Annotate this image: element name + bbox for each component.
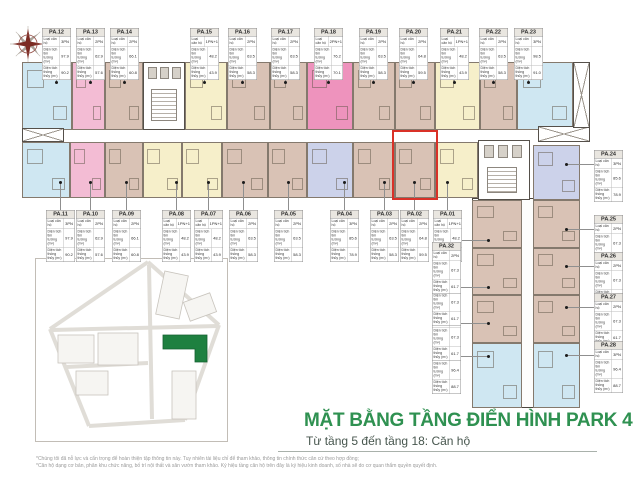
- leader-dot: [383, 181, 386, 184]
- footnotes: *Chúng tôi đã nỗ lực và cẩn trọng để hoà…: [36, 456, 596, 470]
- unit-info-table-PA.32: PA.32Loại căn hộ2PNDiện tích tim tường (…: [432, 242, 461, 294]
- info-row-1: Loại căn hộ2PN: [77, 37, 105, 48]
- info-row-2: Diện tích tim tường (m²)48.2: [195, 229, 223, 248]
- unit-PA.10[interactable]: [70, 142, 105, 198]
- info-row-value: 90.2: [60, 66, 71, 80]
- info-row-label: Diện tích tim tường (m²): [433, 261, 450, 279]
- info-row-value: 63.5: [292, 229, 303, 247]
- leader-dot: [565, 306, 568, 309]
- info-row-label: Diện tích thông thủy (m²): [163, 248, 180, 262]
- info-row-label: Loại căn hộ: [400, 37, 417, 47]
- floor-plan-page: PA.01Loại căn hộ1PN+1Diện tích tim tường…: [0, 0, 640, 500]
- info-row-2: Diện tích tim tường (m²)64.8: [401, 229, 429, 248]
- info-row-value: 66.1: [130, 229, 141, 247]
- info-row-value: 62.9: [94, 229, 105, 247]
- info-row-label: Diện tích thông thủy (m²): [315, 66, 332, 80]
- info-row-3: Diện tích thông thủy (m²)88.7: [433, 380, 461, 394]
- unit-PA.04[interactable]: [307, 142, 353, 198]
- unit-PA.25[interactable]: [533, 200, 580, 248]
- unit-PA.03[interactable]: [353, 142, 395, 198]
- info-row-label: Loại căn hộ: [191, 37, 206, 47]
- unit-info-table-PA.16: PA.16Loại căn hộ2PNDiện tích tim tường (…: [228, 28, 257, 80]
- info-row-value: 67.3: [612, 271, 623, 289]
- info-row-value: 2PN: [292, 219, 303, 229]
- info-row-3: Diện tích thông thủy (m²)58.3: [229, 66, 257, 80]
- unit-id-label: PA.01: [434, 211, 462, 219]
- info-row-value: 3PN: [612, 159, 623, 169]
- info-row-3: Diện tích thông thủy (m²)61.7: [433, 312, 461, 326]
- info-row-label: Diện tích thông thủy (m²): [360, 66, 377, 80]
- info-row-value: 60.8: [128, 66, 139, 80]
- info-row-1: Loại căn hộ3PN: [47, 219, 75, 230]
- unit-id-label: PA.18: [315, 29, 343, 37]
- info-row-label: Diện tích tim tường (m²): [272, 47, 289, 65]
- info-row-value: 43.9: [208, 66, 219, 80]
- info-row-value: 58.3: [388, 248, 399, 262]
- info-row-value: 43.9: [180, 248, 191, 262]
- leader-dot: [487, 355, 490, 358]
- info-row-label: Diện tích tim tường (m²): [191, 47, 208, 65]
- unit-id-label: PA.15: [191, 29, 219, 37]
- info-row-value: 48.2: [208, 47, 219, 65]
- info-row-value: 2PN+1: [329, 37, 342, 47]
- info-row-label: Loại căn hộ: [275, 219, 292, 229]
- leader-dot: [241, 81, 244, 84]
- info-row-label: Diện tích thông thủy (m²): [272, 66, 289, 80]
- info-row-label: Loại căn hộ: [163, 219, 178, 229]
- unit-info-table-PA.10: PA.10Loại căn hộ2PNDiện tích tim tường (…: [76, 210, 105, 262]
- info-row-3: Diện tích thông thủy (m²)60.8: [113, 248, 141, 262]
- unit-id-label: PA.19: [360, 29, 388, 37]
- info-row-value: 62.9: [94, 47, 105, 65]
- elevator-core-center: [143, 62, 185, 130]
- leader-line: [344, 182, 345, 210]
- info-row-1: Loại căn hộ2PN: [595, 302, 623, 313]
- unit-info-table-PA.08: PA.08Loại căn hộ1PN+1Diện tích tim tường…: [162, 210, 191, 262]
- info-row-value: 61.7: [450, 347, 461, 361]
- info-row-2: Diện tích tim tường (m²)67.3: [595, 234, 623, 253]
- info-row-1: Loại căn hộ3PN: [595, 159, 623, 170]
- stairwell-right-end-icon: [573, 62, 590, 128]
- leader-line: [460, 356, 488, 357]
- leader-dot: [372, 81, 375, 84]
- info-row-value: 97.9: [64, 229, 75, 247]
- stairwell-left-icon: [22, 128, 64, 142]
- info-row-value: 58.3: [292, 248, 303, 262]
- leader-dot: [287, 181, 290, 184]
- info-row-label: Diện tích tim tường (m²): [433, 328, 450, 346]
- leader-dot: [453, 81, 456, 84]
- unit-PA.06[interactable]: [222, 142, 268, 198]
- info-row-1: Loại căn hộ3PN: [331, 219, 359, 230]
- leader-dot: [565, 228, 568, 231]
- info-row-value: 2PN: [612, 224, 623, 234]
- site-location-map: [35, 258, 228, 442]
- info-row-label: Loại căn hộ: [595, 302, 612, 312]
- info-row-value: 85.6: [348, 229, 359, 247]
- leader-dot: [125, 181, 128, 184]
- stairwell-corner-icon: [538, 126, 590, 142]
- info-row-value: 2PN: [377, 37, 388, 47]
- info-row-label: Diện tích thông thủy (m²): [480, 66, 497, 80]
- info-row-value: 85.6: [612, 169, 623, 187]
- leader-dot: [59, 181, 62, 184]
- info-row-label: Diện tích tim tường (m²): [480, 47, 497, 65]
- info-row-label: Loại căn hộ: [43, 37, 60, 47]
- unit-info-table-PA.13: PA.13Loại căn hộ2PNDiện tích tim tường (…: [76, 28, 105, 80]
- info-row-label: Loại căn hộ: [433, 251, 450, 261]
- unit-id-label: PA.02: [401, 211, 429, 219]
- unit-info-table-PA.11: PA.11Loại căn hộ3PNDiện tích tim tường (…: [46, 210, 75, 262]
- unit-info-table-PA.17: PA.17Loại căn hộ2PNDiện tích tim tường (…: [271, 28, 300, 80]
- info-row-label: Diện tích tim tường (m²): [163, 229, 180, 247]
- leader-line: [243, 182, 244, 210]
- unit-PA.11[interactable]: [22, 142, 70, 198]
- info-row-value: 67.3: [612, 234, 623, 252]
- selected-unit-outline: [392, 130, 438, 200]
- info-row-value: 63.5: [246, 47, 257, 65]
- page-title: MẶT BẰNG TẦNG ĐIỂN HÌNH PARK 4: [304, 410, 634, 432]
- leader-line: [384, 182, 385, 210]
- leader-line: [566, 229, 594, 230]
- info-row-1: Loại căn hộ2PN: [480, 37, 508, 48]
- info-row-value: 2PN: [128, 37, 139, 47]
- leader-dot: [207, 181, 210, 184]
- unit-id-label: PA.25: [595, 216, 623, 224]
- leader-dot: [565, 163, 568, 166]
- leader-dot: [284, 81, 287, 84]
- info-row-label: Diện tích tim tường (m²): [433, 361, 450, 379]
- info-row-label: Diện tích thông thủy (m²): [47, 248, 64, 262]
- info-row-value: 96.4: [612, 360, 623, 378]
- info-row-value: 1PN+1: [455, 37, 468, 47]
- leader-line: [126, 182, 127, 210]
- info-row-value: 64.8: [418, 229, 429, 247]
- info-row-1: Loại căn hộ2PN: [400, 37, 428, 48]
- info-row-value: 2PN: [612, 261, 623, 271]
- unit-info-table-PA.24: PA.24Loại căn hộ3PNDiện tích tim tường (…: [594, 150, 623, 202]
- leader-dot: [203, 81, 206, 84]
- info-row-value: 2PN: [497, 37, 508, 47]
- leader-line: [208, 182, 209, 210]
- info-row-value: 57.6: [94, 248, 105, 262]
- info-row-label: Diện tích thông thủy (m²): [77, 66, 94, 80]
- info-row-value: 48.2: [180, 229, 191, 247]
- elevator-core-corner: [478, 140, 530, 200]
- info-row-value: 63.5: [377, 47, 388, 65]
- info-row-label: Diện tích thông thủy (m²): [433, 312, 450, 326]
- info-row-label: Diện tích thông thủy (m²): [113, 248, 130, 262]
- info-row-1: Loại căn hộ1PN+1: [434, 219, 462, 230]
- info-row-value: 98.5: [532, 47, 543, 65]
- info-row-2: Diện tích tim tường (m²)96.4: [433, 361, 461, 380]
- unit-PA.28[interactable]: [533, 343, 580, 408]
- info-row-1: Loại căn hộ2PN: [433, 251, 461, 262]
- info-row-value: 2PN: [130, 219, 141, 229]
- info-row-3: Diện tích thông thủy (m²)78.9: [595, 188, 623, 202]
- unit-id-label: PA.27: [595, 294, 623, 302]
- info-row-label: Diện tích thông thủy (m²): [515, 66, 532, 80]
- leader-dot: [89, 181, 92, 184]
- info-row-1: Loại căn hộ2PN: [401, 219, 429, 230]
- info-row-1: Loại căn hộ2PN: [77, 219, 105, 230]
- info-row-3: Diện tích thông thủy (m²)59.5: [401, 248, 429, 262]
- unit-info-table-PA.02: PA.02Loại căn hộ2PNDiện tích tim tường (…: [400, 210, 429, 262]
- page-subtitle: Từ tầng 5 đến tầng 18: Căn hộ: [306, 434, 470, 448]
- unit-info-table-PA.09: PA.09Loại căn hộ2PNDiện tích tim tường (…: [112, 210, 141, 262]
- info-row-3: Diện tích thông thủy (m²)57.6: [77, 248, 105, 262]
- info-row-3: Diện tích thông thủy (m²)58.3: [480, 66, 508, 80]
- info-row-2: Diện tích tim tường (m²)98.5: [515, 47, 543, 66]
- info-row-label: Diện tích tim tường (m²): [401, 229, 418, 247]
- leader-line: [60, 182, 61, 210]
- info-row-value: 3PN: [532, 37, 543, 47]
- info-row-label: Diện tích tim tường (m²): [47, 229, 64, 247]
- info-row-3: Diện tích thông thủy (m²)58.3: [371, 248, 399, 262]
- info-row-label: Loại căn hộ: [401, 219, 418, 229]
- info-row-2: Diện tích tim tường (m²)67.3: [595, 271, 623, 290]
- unit-info-table-PA.20: PA.20Loại căn hộ2PNDiện tích tim tường (…: [399, 28, 428, 80]
- info-row-1: Loại căn hộ3PN: [595, 350, 623, 361]
- info-row-label: Diện tích tim tường (m²): [360, 47, 377, 65]
- info-row-3: Diện tích thông thủy (m²)43.9: [195, 248, 223, 262]
- info-row-1: Loại căn hộ1PN+1: [191, 37, 219, 48]
- info-row-value: 1PN+1: [177, 219, 190, 229]
- info-row-label: Loại căn hộ: [441, 37, 456, 47]
- unit-PA.07[interactable]: [182, 142, 222, 198]
- info-row-value: 60.8: [130, 248, 141, 262]
- info-row-2: Diện tích tim tường (m²)76.2: [315, 47, 343, 66]
- info-row-3: Diện tích thông thủy (m²)57.6: [77, 66, 105, 80]
- info-row-2: Diện tích tim tường (m²)67.3: [433, 261, 461, 280]
- info-row-1: Loại căn hộ2PN: [595, 224, 623, 235]
- leader-dot: [487, 286, 490, 289]
- info-row-2: Diện tích tim tường (m²)63.5: [229, 47, 257, 66]
- info-row-value: 1PN+1: [209, 219, 222, 229]
- leader-dot: [487, 322, 490, 325]
- unit-id-label: PA.08: [163, 211, 191, 219]
- info-row-label: Loại căn hộ: [360, 37, 377, 47]
- unit-PA.30[interactable]: [472, 295, 522, 343]
- info-row-1: Loại căn hộ2PN: [272, 37, 300, 48]
- info-row-1: Loại căn hộ2PN: [595, 261, 623, 272]
- unit-id-label: PA.20: [400, 29, 428, 37]
- info-row-2: Diện tích tim tường (m²)85.6: [595, 169, 623, 188]
- info-row-2: Diện tích tim tường (m²)66.1: [113, 229, 141, 248]
- unit-id-label: PA.07: [195, 211, 223, 219]
- info-row-1: Loại căn hộ2PN: [113, 219, 141, 230]
- leader-dot: [412, 81, 415, 84]
- unit-id-label: PA.23: [515, 29, 543, 37]
- info-row-3: Diện tích thông thủy (m²)61.7: [433, 280, 461, 294]
- info-row-3: Diện tích thông thủy (m²)58.3: [275, 248, 303, 262]
- leader-dot: [242, 181, 245, 184]
- leader-dot: [343, 181, 346, 184]
- info-row-value: 3PN: [60, 37, 71, 47]
- leader-dot: [565, 265, 568, 268]
- info-row-1: Loại căn hộ2PN: [371, 219, 399, 230]
- info-row-value: 63.5: [247, 229, 258, 247]
- info-row-2: Diện tích tim tường (m²)67.3: [595, 312, 623, 331]
- unit-id-label: PA.28: [595, 342, 623, 350]
- footnote-line-2: *Căn hộ dạng cơ bản, phân khu chức năng,…: [36, 463, 596, 470]
- info-row-2: Diện tích tim tường (m²)62.9: [77, 229, 105, 248]
- info-row-label: Diện tích tim tường (m²): [275, 229, 292, 247]
- info-row-label: Loại căn hộ: [315, 37, 330, 47]
- unit-PA.01[interactable]: [435, 142, 478, 198]
- unit-info-table-PA.06: PA.06Loại căn hộ2PNDiện tích tim tường (…: [229, 210, 258, 262]
- info-row-1: Loại căn hộ3PN: [43, 37, 71, 48]
- info-row-3: Diện tích thông thủy (m²)91.0: [515, 66, 543, 80]
- info-row-label: Loại căn hộ: [595, 350, 612, 360]
- unit-info-table-PA.05: PA.05Loại căn hộ2PNDiện tích tim tường (…: [274, 210, 303, 262]
- info-row-label: Diện tích thông thủy (m²): [371, 248, 388, 262]
- leader-line: [288, 182, 289, 210]
- info-row-label: Diện tích thông thủy (m²): [230, 248, 247, 262]
- info-row-value: 61.7: [450, 312, 461, 326]
- info-row-value: 64.8: [417, 47, 428, 65]
- info-row-label: Diện tích tim tường (m²): [315, 47, 332, 65]
- info-row-3: Diện tích thông thủy (m²)60.8: [111, 66, 139, 80]
- info-row-1: Loại căn hộ2PN: [229, 37, 257, 48]
- info-row-label: Diện tích tim tường (m²): [43, 47, 60, 65]
- footnote-line-1: *Chúng tôi đã nỗ lực và cẩn trọng để hoà…: [36, 456, 596, 463]
- info-row-3: Diện tích thông thủy (m²)70.1: [315, 66, 343, 80]
- info-row-label: Diện tích tim tường (m²): [433, 293, 450, 311]
- info-row-3: Diện tích thông thủy (m²)88.7: [595, 379, 623, 393]
- info-row-2: Diện tích tim tường (m²)63.5: [480, 47, 508, 66]
- leader-line: [566, 355, 594, 356]
- info-row-value: 57.6: [94, 66, 105, 80]
- unit-id-label: PA.09: [113, 211, 141, 219]
- info-row-2: Diện tích tim tường (m²)64.8: [400, 47, 428, 66]
- info-row-label: Diện tích thông thủy (m²): [275, 248, 292, 262]
- info-row-value: 1PN+1: [448, 219, 461, 229]
- info-row-2: Diện tích tim tường (m²)97.9: [43, 47, 71, 66]
- unit-info-table-PA.18: PA.18Loại căn hộ2PN+1Diện tích tim tường…: [314, 28, 343, 80]
- unit-info-table-PA.14: PA.14Loại căn hộ2PNDiện tích tim tường (…: [110, 28, 139, 80]
- info-row-label: Diện tích thông thủy (m²): [229, 66, 246, 80]
- unit-info-table-PA.12: PA.12Loại căn hộ3PNDiện tích tim tường (…: [42, 28, 71, 80]
- unit-PA.09[interactable]: [105, 142, 143, 198]
- info-row-label: Diện tích thông thủy (m²): [595, 379, 612, 393]
- info-row-label: Loại căn hộ: [331, 219, 348, 229]
- unit-info-table-PA.23: PA.23Loại căn hộ3PNDiện tích tim tường (…: [514, 28, 543, 80]
- info-row-value: 59.5: [418, 248, 429, 262]
- info-row-value: 58.3: [497, 66, 508, 80]
- info-row-value: 97.9: [60, 47, 71, 65]
- info-row-value: 3PN: [612, 350, 623, 360]
- info-row-value: 2PN: [94, 37, 105, 47]
- unit-id-label: PA.32: [433, 243, 461, 251]
- info-row-value: 43.9: [212, 248, 223, 262]
- unit-id-label: PA.12: [43, 29, 71, 37]
- info-row-1: Loại căn hộ2PN: [275, 219, 303, 230]
- info-row-1: Loại căn hộ2PN: [111, 37, 139, 48]
- unit-id-label: PA.17: [272, 29, 300, 37]
- info-row-label: Diện tích tim tường (m²): [113, 229, 130, 247]
- unit-id-label: PA.16: [229, 29, 257, 37]
- info-row-value: 63.5: [289, 47, 300, 65]
- info-row-label: Loại căn hộ: [47, 219, 64, 229]
- unit-PA.24[interactable]: [533, 145, 580, 200]
- info-row-label: Loại căn hộ: [595, 159, 612, 169]
- info-row-label: Diện tích tim tường (m²): [331, 229, 348, 247]
- unit-id-label: PA.13: [77, 29, 105, 37]
- unit-id-label: PA.26: [595, 253, 623, 261]
- info-row-value: 2PN: [247, 219, 258, 229]
- info-row-3: Diện tích thông thủy (m²)58.3: [272, 66, 300, 80]
- leader-line: [566, 266, 594, 267]
- info-row-label: Diện tích thông thủy (m²): [77, 248, 94, 262]
- unit-info-table-PA.03: PA.03Loại căn hộ2PNDiện tích tim tường (…: [370, 210, 399, 262]
- info-row-value: 66.1: [128, 47, 139, 65]
- leader-dot: [175, 181, 178, 184]
- info-row-value: 90.2: [64, 248, 75, 262]
- info-row-label: Loại căn hộ: [515, 37, 532, 47]
- leader-dot: [492, 81, 495, 84]
- info-row-label: Diện tích thông thủy (m²): [595, 188, 612, 202]
- leader-dot: [565, 354, 568, 357]
- info-row-label: Diện tích tim tường (m²): [441, 47, 458, 65]
- info-row-label: Diện tích tim tường (m²): [515, 47, 532, 65]
- unit-id-label: PA.06: [230, 211, 258, 219]
- leader-dot: [487, 239, 490, 242]
- info-row-label: Diện tích thông thủy (m²): [195, 248, 212, 262]
- unit-PA.27[interactable]: [533, 295, 580, 343]
- info-row-label: Diện tích thông thủy (m²): [331, 248, 348, 262]
- info-row-value: 3PN: [348, 219, 359, 229]
- info-row-2: Diện tích tim tường (m²)63.5: [371, 229, 399, 248]
- info-row-label: Diện tích tim tường (m²): [195, 229, 212, 247]
- unit-PA.26[interactable]: [533, 248, 580, 295]
- info-row-1: Loại căn hộ2PN: [360, 37, 388, 48]
- leader-dot: [55, 81, 58, 84]
- leader-line: [566, 307, 594, 308]
- unit-info-table-PA.19: PA.19Loại căn hộ2PNDiện tích tim tường (…: [359, 28, 388, 80]
- info-row-value: 58.3: [246, 66, 257, 80]
- info-row-label: Diện tích tim tường (m²): [595, 271, 612, 289]
- info-row-label: Diện tích thông thủy (m²): [191, 66, 208, 80]
- info-row-label: Diện tích thông thủy (m²): [43, 66, 60, 80]
- info-row-label: Diện tích tim tường (m²): [595, 312, 612, 330]
- info-row-value: 78.9: [348, 248, 359, 262]
- info-row-value: 61.7: [450, 280, 461, 294]
- info-row-label: Diện tích thông thủy (m²): [111, 66, 128, 80]
- info-row-2: Diện tích tim tường (m²)85.6: [331, 229, 359, 248]
- info-row-3: Diện tích thông thủy (m²)90.2: [47, 248, 75, 262]
- unit-id-label: PA.10: [77, 211, 105, 219]
- info-row-label: Loại căn hộ: [195, 219, 210, 229]
- info-row-3: Diện tích thông thủy (m²)59.5: [400, 66, 428, 80]
- info-row-label: Loại căn hộ: [77, 219, 94, 229]
- info-row-1: Loại căn hộ2PN: [230, 219, 258, 230]
- info-row-2: Diện tích tim tường (m²)48.2: [441, 47, 469, 66]
- unit-id-label: PA.24: [595, 151, 623, 159]
- unit-id-label: PA.21: [441, 29, 469, 37]
- info-row-value: 88.7: [450, 380, 461, 394]
- info-row-value: 2PN: [612, 302, 623, 312]
- info-row-value: 58.3: [289, 66, 300, 80]
- info-row-1: Loại căn hộ1PN+1: [195, 219, 223, 230]
- unit-PA.29[interactable]: [472, 343, 522, 408]
- info-row-label: Loại căn hộ: [272, 37, 289, 47]
- info-row-label: Diện tích tim tường (m²): [371, 229, 388, 247]
- leader-line: [460, 323, 488, 324]
- info-row-label: Loại căn hộ: [113, 219, 130, 229]
- unit-info-table-PA.15: PA.15Loại căn hộ1PN+1Diện tích tim tường…: [190, 28, 219, 80]
- info-row-value: 2PN: [94, 219, 105, 229]
